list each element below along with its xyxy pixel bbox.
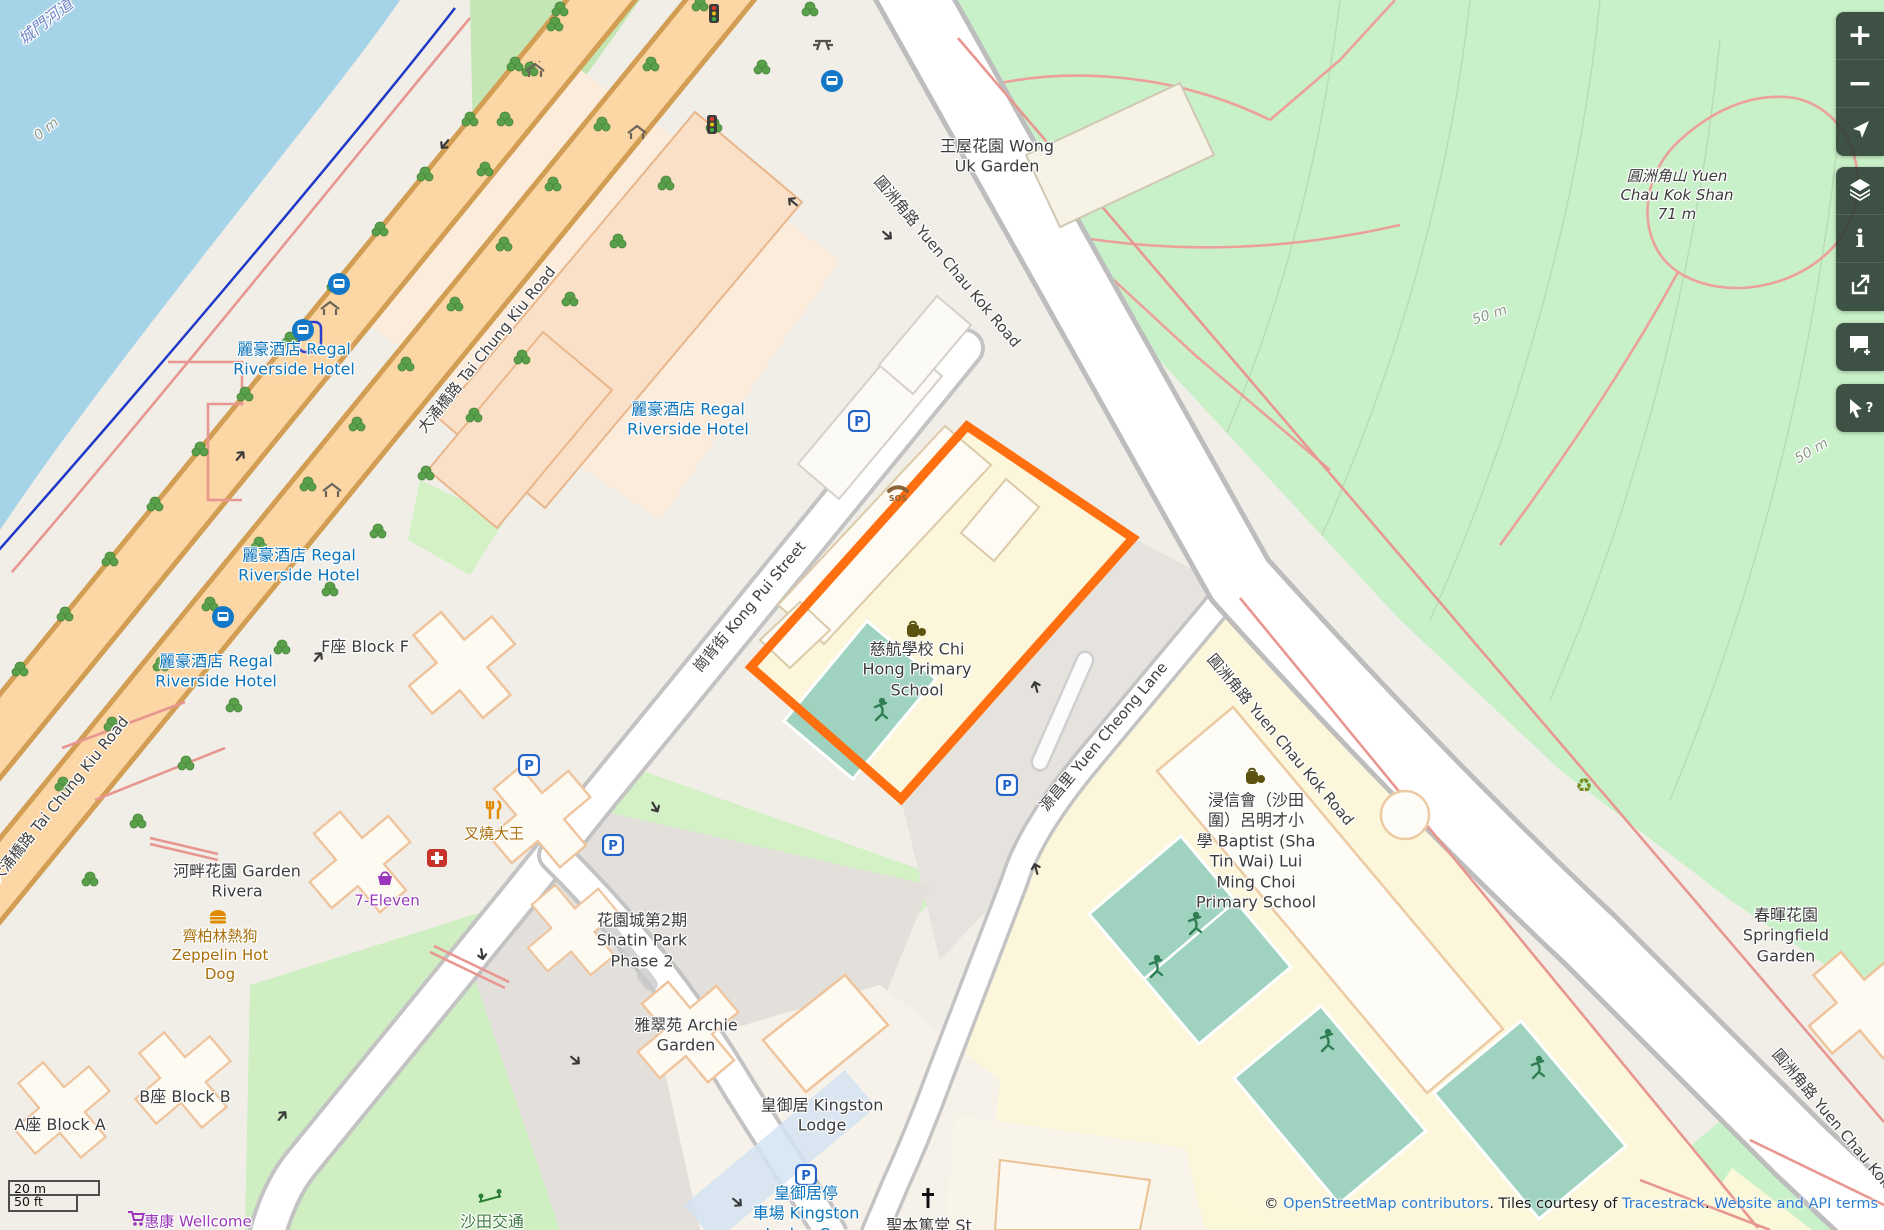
- query-features-button[interactable]: ?: [1836, 384, 1884, 432]
- tracestrack-link[interactable]: Tracestrack: [1622, 1196, 1705, 1212]
- minus-icon: −: [1847, 69, 1872, 99]
- note-control: [1836, 323, 1884, 371]
- add-note-button[interactable]: [1836, 323, 1884, 371]
- locate-me-button[interactable]: [1836, 108, 1884, 156]
- osm-contributors-link[interactable]: OpenStreetMap contributors: [1283, 1196, 1489, 1212]
- scale-imperial: 50 ft: [8, 1196, 78, 1212]
- layers-icon: [1848, 177, 1872, 205]
- attribution: © OpenStreetMap contributors. Tiles cour…: [1264, 1196, 1878, 1212]
- query-cursor-icon: ?: [1847, 398, 1874, 418]
- scale-bar: 20 m 50 ft: [8, 1180, 100, 1212]
- note-bubble-icon: [1848, 334, 1872, 360]
- query-control: ?: [1836, 384, 1884, 432]
- plus-icon: +: [1847, 21, 1872, 51]
- attribution-text: . Tiles courtesy of: [1489, 1196, 1622, 1212]
- zoom-out-button[interactable]: −: [1836, 60, 1884, 108]
- zoom-in-button[interactable]: +: [1836, 12, 1884, 60]
- map-tiles: [0, 0, 1884, 1230]
- map-tools-controls: i: [1836, 167, 1884, 311]
- zoom-controls: + −: [1836, 12, 1884, 156]
- attribution-text: .: [1705, 1196, 1714, 1212]
- share-icon: [1849, 274, 1871, 300]
- attribution-copyright: ©: [1264, 1196, 1283, 1212]
- map-info-button[interactable]: i: [1836, 215, 1884, 263]
- share-button[interactable]: [1836, 263, 1884, 311]
- locate-arrow-icon: [1849, 119, 1871, 145]
- map-canvas[interactable]: P P P P P SOS ♻ 王屋花園 Wong Uk Garden 圓洲角路…: [0, 0, 1884, 1230]
- terms-link[interactable]: Website and API terms: [1714, 1196, 1878, 1212]
- info-icon: i: [1855, 227, 1864, 251]
- layers-button[interactable]: [1836, 167, 1884, 215]
